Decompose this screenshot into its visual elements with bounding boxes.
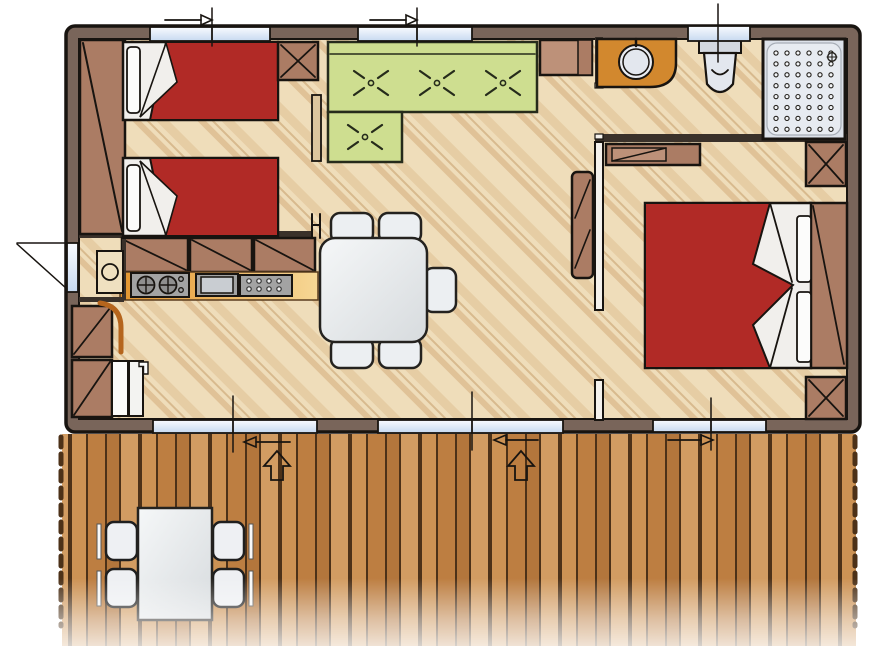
kids-bed-top bbox=[123, 42, 278, 120]
master-cabinet-top bbox=[806, 142, 846, 186]
kitchen-base-cabinet bbox=[72, 360, 112, 417]
kids-bed-bottom bbox=[123, 158, 278, 236]
kitchen-sink bbox=[196, 274, 238, 296]
kitchen-overhead-cabinet-3 bbox=[254, 238, 315, 272]
master-cabinet-bottom bbox=[806, 377, 846, 419]
fridge bbox=[112, 361, 148, 416]
master-wardrobe bbox=[810, 203, 847, 368]
kitchen-drainer bbox=[240, 275, 292, 296]
shower bbox=[763, 39, 845, 139]
window-living-room bbox=[358, 8, 472, 46]
master-shelf bbox=[606, 144, 700, 165]
kids-wardrobe bbox=[80, 40, 125, 234]
dining-table bbox=[320, 238, 427, 342]
water-heater bbox=[97, 251, 123, 293]
entry-door bbox=[17, 243, 78, 292]
tv-cabinet bbox=[572, 172, 593, 278]
floor-plan-canvas bbox=[0, 0, 883, 660]
kitchen-overhead-cabinet-2 bbox=[190, 238, 252, 272]
kitchen-hob bbox=[131, 273, 189, 297]
deck-fade bbox=[56, 578, 860, 660]
bedroom-storage-cabinet bbox=[278, 42, 318, 80]
sofa-armrest bbox=[312, 95, 321, 161]
floor-plan-page bbox=[0, 0, 883, 660]
master-bed bbox=[645, 203, 811, 368]
window-kids-room bbox=[150, 8, 270, 46]
dining-chair-right bbox=[424, 268, 456, 312]
kitchen-overhead-cabinet-1 bbox=[122, 238, 188, 272]
living-cabinet bbox=[540, 40, 592, 75]
